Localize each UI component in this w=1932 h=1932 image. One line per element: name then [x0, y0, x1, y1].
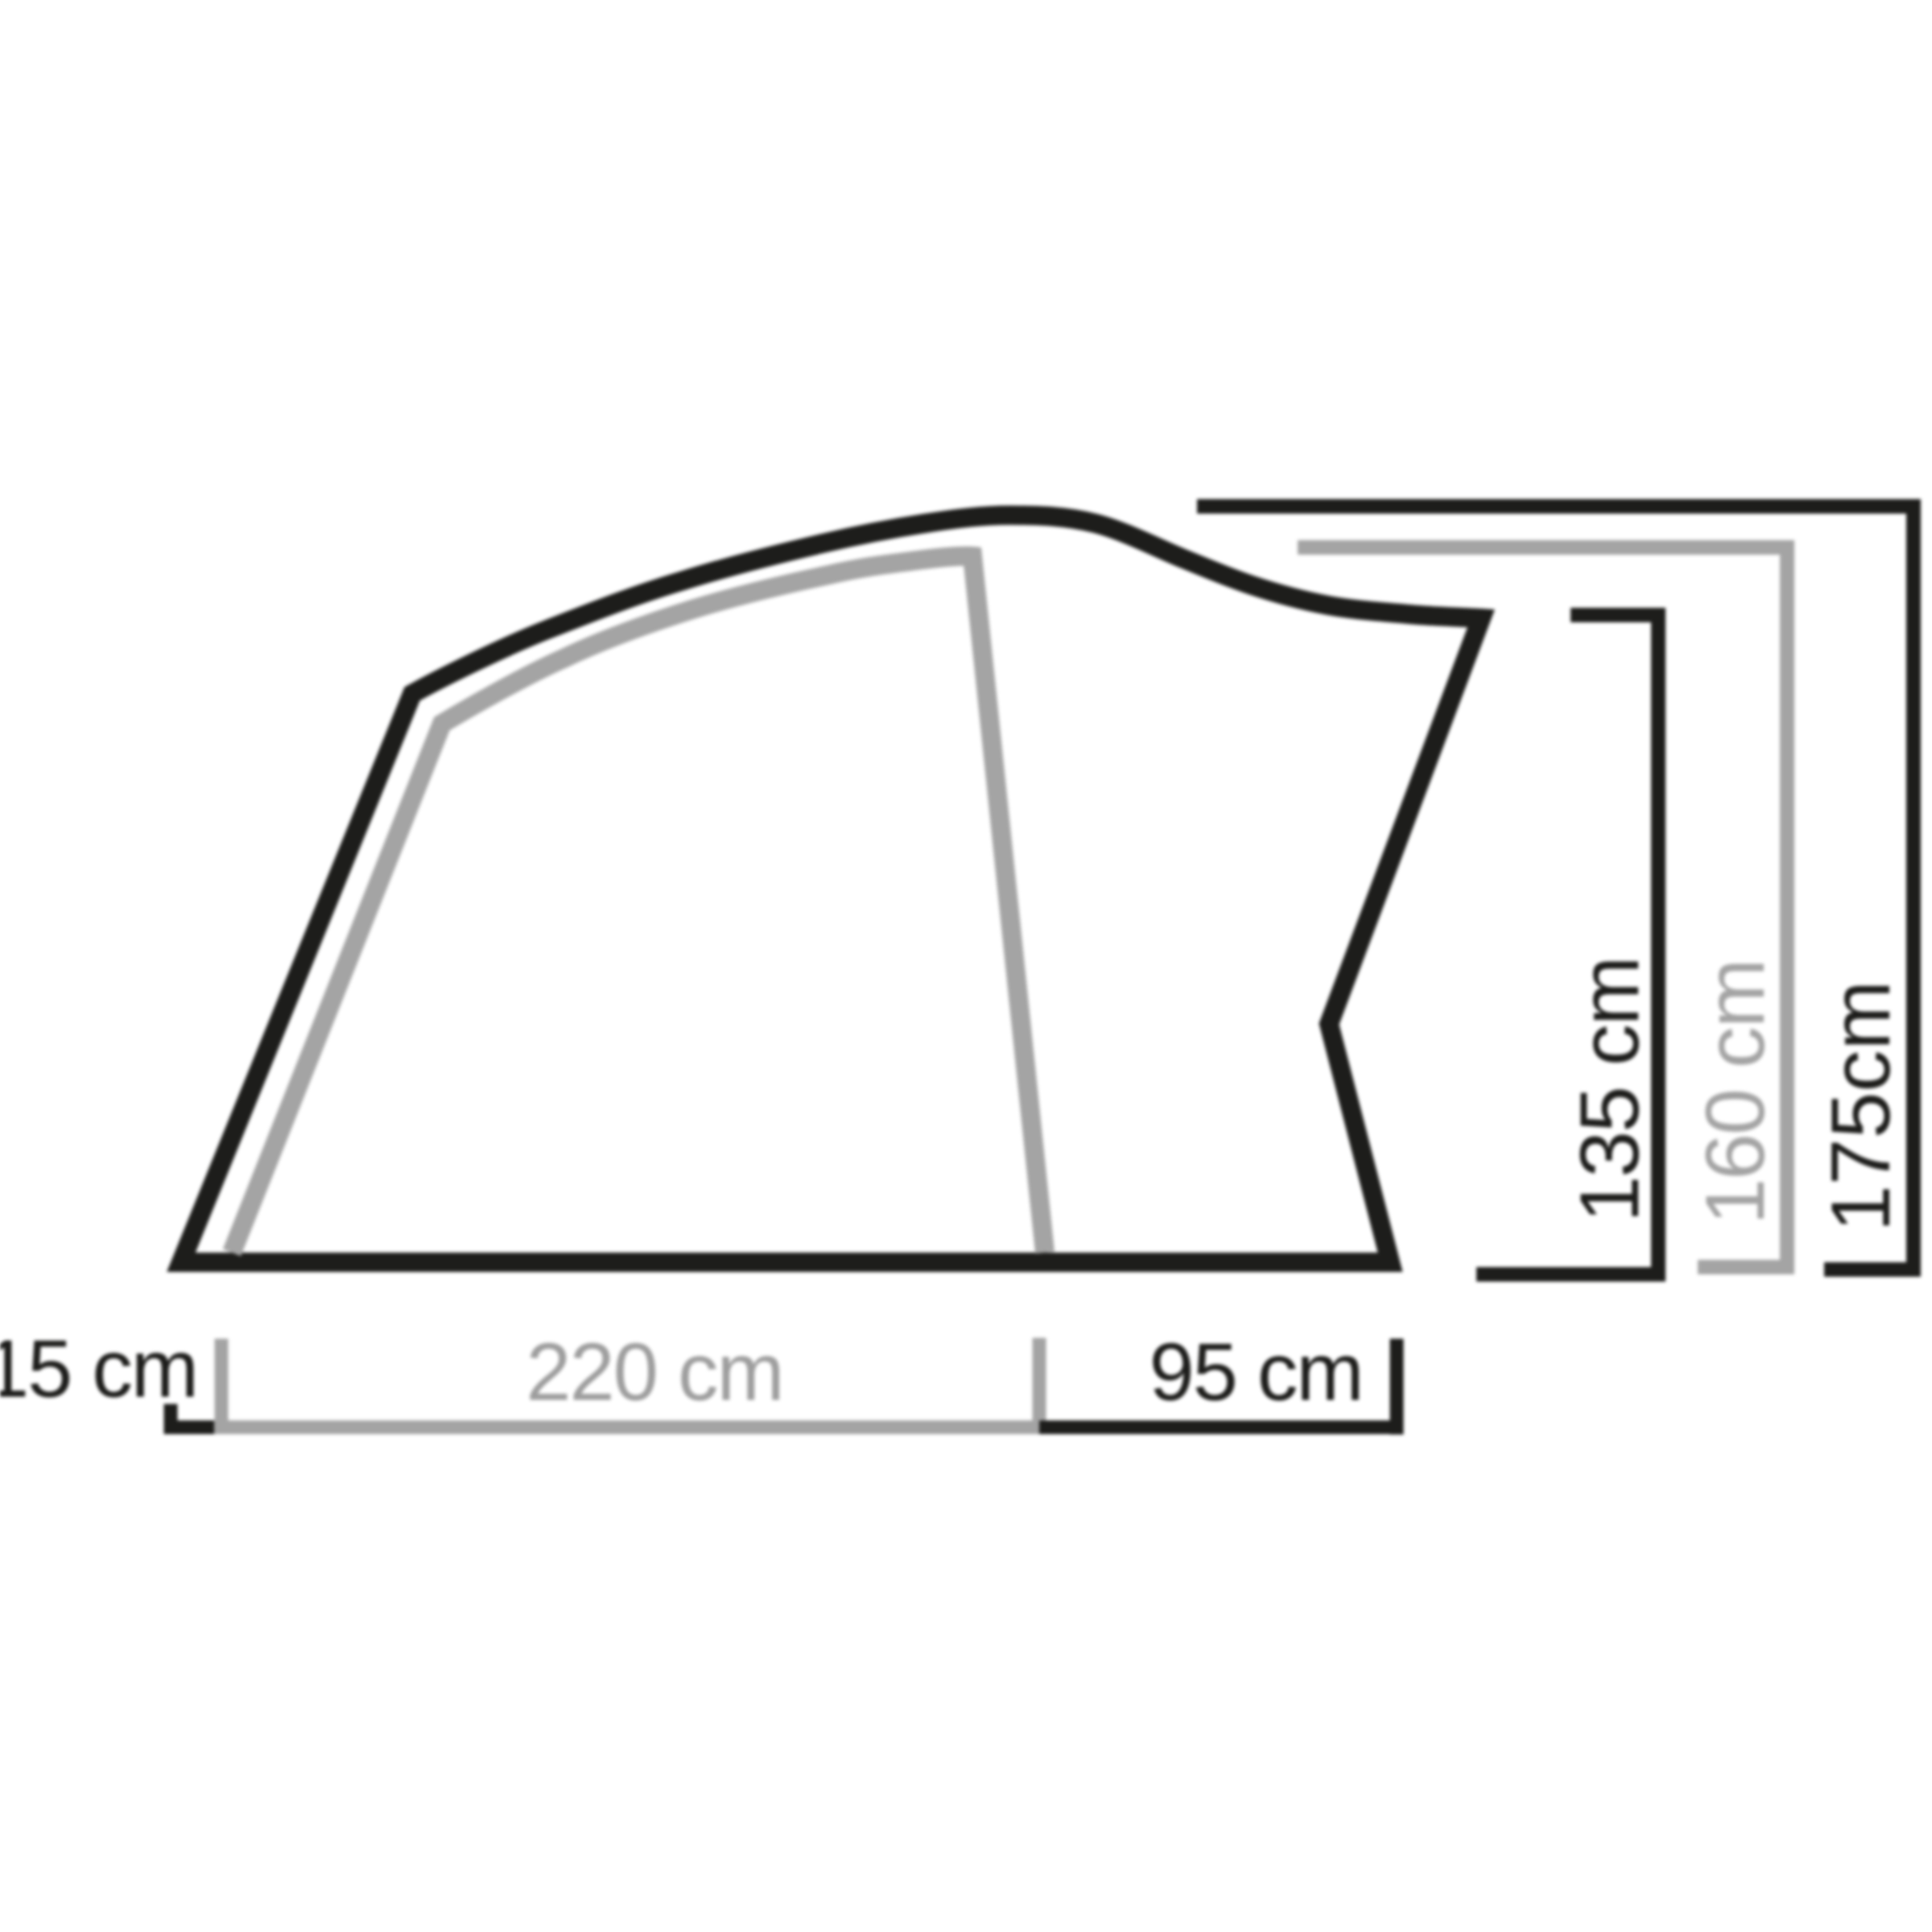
- svg-text:160 cm: 160 cm: [1689, 960, 1782, 1224]
- svg-text:175cm: 175cm: [1814, 980, 1908, 1232]
- svg-text:220 cm: 220 cm: [526, 1327, 782, 1418]
- svg-text:95 cm: 95 cm: [1149, 1327, 1362, 1418]
- svg-text:135 cm: 135 cm: [1563, 957, 1657, 1222]
- svg-text:15 cm: 15 cm: [0, 1324, 197, 1414]
